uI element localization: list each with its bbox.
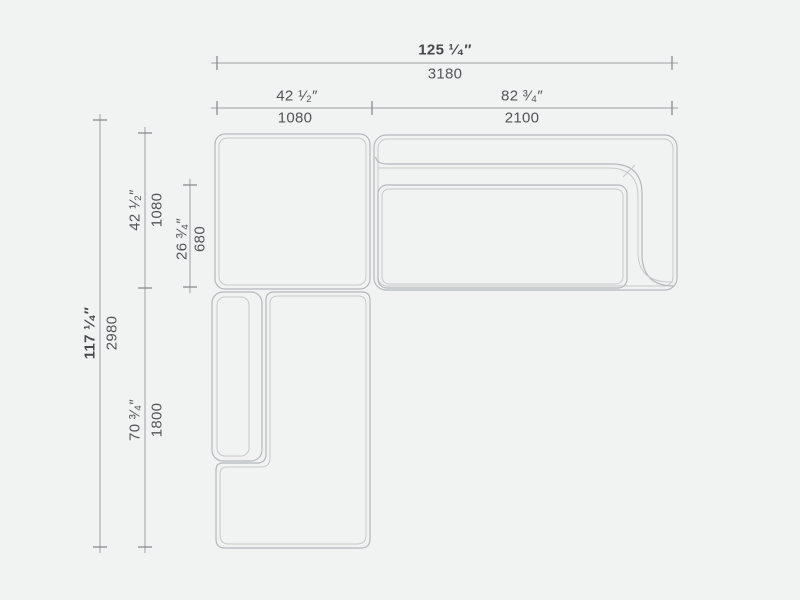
ottoman-module: [215, 134, 370, 289]
sofa-backrest-front-line: [376, 157, 675, 286]
sofa-seat-cushion-inner-line: [382, 189, 623, 284]
label-seat-depth-mm: 680: [192, 226, 209, 252]
ottoman-outline: [215, 134, 370, 289]
chaise-module: [212, 292, 370, 548]
chaise-body-outline: [216, 292, 370, 548]
chaise-armrest-outline: [212, 292, 262, 461]
label-left-section-width-inches: 42 ¹⁄₂″: [276, 88, 318, 105]
sofa-module: [374, 135, 677, 290]
label-chaise-section-length-mm: 1800: [149, 403, 166, 438]
label-overall-depth-inches: 117 ¹⁄₄″: [82, 307, 99, 360]
label-chaise-section-length-inches: 70 ³⁄₄″: [127, 399, 144, 441]
sofa-dimension-drawing: 125 ¹⁄₄″ 3180 42 ¹⁄₂″ 1080 82 ³⁄₄″ 2100 …: [0, 0, 800, 600]
label-right-section-width-mm: 2100: [505, 110, 540, 127]
label-overall-width-mm: 3180: [428, 66, 463, 83]
chaise-armrest-cushion-line: [217, 297, 249, 456]
label-overall-depth-mm: 2980: [104, 316, 121, 351]
sofa-inner-offset-line: [378, 139, 673, 286]
label-overall-width-inches: 125 ¹⁄₄″: [418, 42, 471, 59]
ottoman-cushion-line: [219, 138, 366, 285]
label-seat-depth-inches: 26 ³⁄₄″: [174, 218, 191, 260]
label-left-section-width-mm: 1080: [278, 110, 313, 127]
sofa-outline: [374, 135, 677, 290]
label-upper-section-depth-inches: 42 ¹⁄₂″: [127, 189, 144, 231]
label-right-section-width-inches: 82 ³⁄₄″: [501, 88, 543, 105]
label-upper-section-depth-mm: 1080: [149, 193, 166, 228]
furniture-plan-svg: [0, 0, 800, 600]
chaise-body-inner-line: [220, 296, 366, 544]
sofa-seat-cushion: [378, 185, 627, 288]
